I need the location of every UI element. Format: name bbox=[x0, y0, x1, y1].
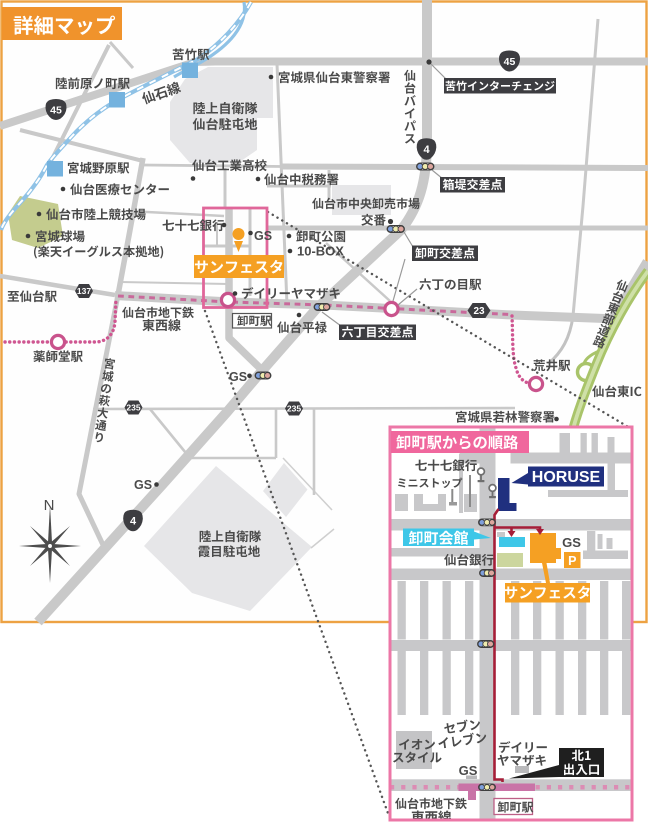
svg-text:P: P bbox=[568, 554, 576, 568]
svg-text:45: 45 bbox=[504, 56, 516, 68]
svg-text:GS: GS bbox=[254, 229, 272, 243]
svg-text:GS: GS bbox=[229, 370, 247, 384]
svg-text:235: 235 bbox=[126, 402, 140, 412]
svg-text:HORUSE: HORUSE bbox=[532, 469, 601, 486]
svg-text:4: 4 bbox=[130, 516, 137, 528]
svg-text:GS: GS bbox=[459, 763, 478, 778]
svg-text:GS: GS bbox=[562, 535, 581, 550]
svg-text:235: 235 bbox=[287, 403, 301, 413]
svg-text:4: 4 bbox=[423, 144, 430, 156]
svg-text:GS: GS bbox=[134, 478, 152, 492]
svg-text:23: 23 bbox=[473, 306, 485, 317]
svg-text:10-BOX: 10-BOX bbox=[297, 244, 344, 259]
svg-text:N: N bbox=[44, 497, 55, 514]
svg-text:45: 45 bbox=[50, 104, 62, 116]
svg-text:137: 137 bbox=[77, 286, 91, 296]
